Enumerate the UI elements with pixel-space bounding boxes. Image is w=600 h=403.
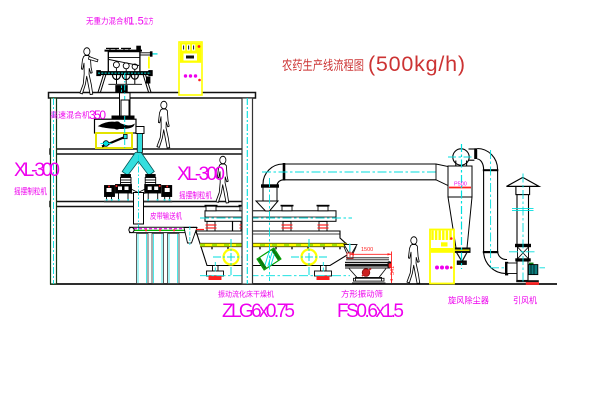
svg-text:1.5: 1.5 <box>129 16 144 28</box>
svg-text:ZLG6x0.75: ZLG6x0.75 <box>222 301 295 322</box>
svg-text:XL-300: XL-300 <box>14 160 60 181</box>
svg-text:(500kg/h): (500kg/h) <box>368 52 465 76</box>
svg-text:FS0.6x1.5: FS0.6x1.5 <box>337 301 404 322</box>
svg-text:1500: 1500 <box>361 247 373 253</box>
svg-text:XL-300: XL-300 <box>177 164 225 185</box>
svg-text:350: 350 <box>89 108 106 122</box>
svg-text:P500: P500 <box>454 182 467 188</box>
svg-text:541: 541 <box>390 266 396 275</box>
